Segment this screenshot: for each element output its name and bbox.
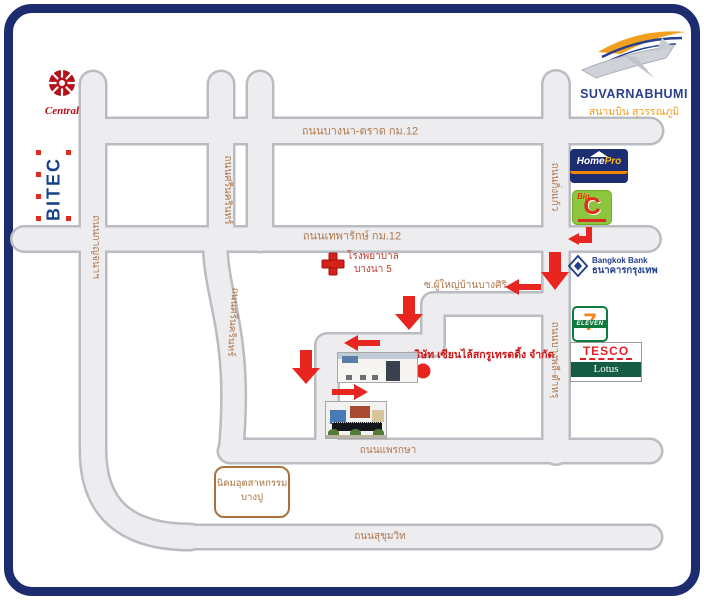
hospital-marker: โรงพยาบาล บางนา 5 (347, 250, 399, 276)
central-flower-icon (45, 68, 79, 100)
building-photo-company (337, 352, 418, 383)
seven-eleven-logo: 7 ELEVEN (572, 306, 608, 342)
bangkok-bank-logo: Bangkok Bank ธนาคารกรุงเทพ (568, 254, 658, 278)
map-screenshot: ถนนบางนา-ตราด กม.12 ถนนเทพารักษ์ กม.12 ถ… (0, 0, 704, 600)
lotus-text: Lotus (571, 362, 641, 377)
road-label-thepharak: ถนนเทพารักษ์ กม.12 (303, 232, 401, 243)
road-label-srinakarin-upper: ถนนศรีนครินทร์ (222, 155, 232, 224)
bitec-logo-text: BITEC (44, 157, 65, 221)
hospital-name: โรงพยาบาล (347, 250, 399, 263)
hospital-branch: บางนา 5 (347, 263, 399, 276)
bangkok-bank-name-th: ธนาคารกรุงเทพ (592, 265, 658, 276)
bangpu-line1: นิคมอุตสาหกรรม (216, 477, 288, 491)
central-logo-text: Central (34, 105, 90, 117)
tesco-dashes (580, 358, 632, 360)
homepro-logo: HomePro (570, 149, 628, 183)
bigc-red-strip (578, 219, 606, 222)
central-logo: Central (34, 68, 90, 117)
suvarnabhumi-name-th: สนามบิน สุวรรณภูมิ (570, 103, 698, 120)
suvarnabhumi-name-en: SUVARNABHUMI (570, 87, 698, 101)
bank-diamond-icon (568, 254, 588, 278)
suvarnabhumi-logo: SUVARNABHUMI สนามบิน สุวรรณภูมิ (570, 24, 698, 120)
road-label-kanchana: ถนนกาญจนาฯ (90, 215, 100, 279)
company-label: บริษัท เซียนไล้สกรูเทรดดิ้ง จำกัด (408, 346, 554, 363)
road-label-soi: ซ.ผู้ใหญ่บ้านบางศิริ (424, 278, 507, 293)
bigc-text-big: Big (577, 192, 590, 201)
bangpu-industrial-estate-box: นิคมอุตสาหกรรม บางปู (214, 466, 290, 518)
homepro-text-home: Home (577, 156, 605, 167)
seven-eleven-band: ELEVEN (574, 320, 606, 328)
bigc-logo: Big C (572, 190, 612, 225)
homepro-text-pro: Pro (605, 156, 622, 167)
bangkok-bank-name-en: Bangkok Bank (592, 256, 658, 266)
road-label-sukhumvit: ถนนสุขุมวิท (354, 532, 405, 542)
road-label-king-kaew: ถนนกิ่งแก้ว (549, 163, 559, 212)
tesco-text: TESCO (571, 345, 641, 358)
bangpu-line2: บางปู (216, 491, 288, 505)
homepro-orange-strip (570, 171, 628, 174)
airplane-icon (576, 24, 692, 82)
road-label-bangna-trat: ถนนบางนา-ตราด กม.12 (302, 127, 418, 138)
building-photo-factory (325, 401, 387, 439)
road-label-phraeksa: ถนนแพรกษา (360, 446, 416, 456)
tesco-lotus-logo: TESCO Lotus (570, 342, 642, 382)
bitec-logo: BITEC (34, 144, 74, 234)
